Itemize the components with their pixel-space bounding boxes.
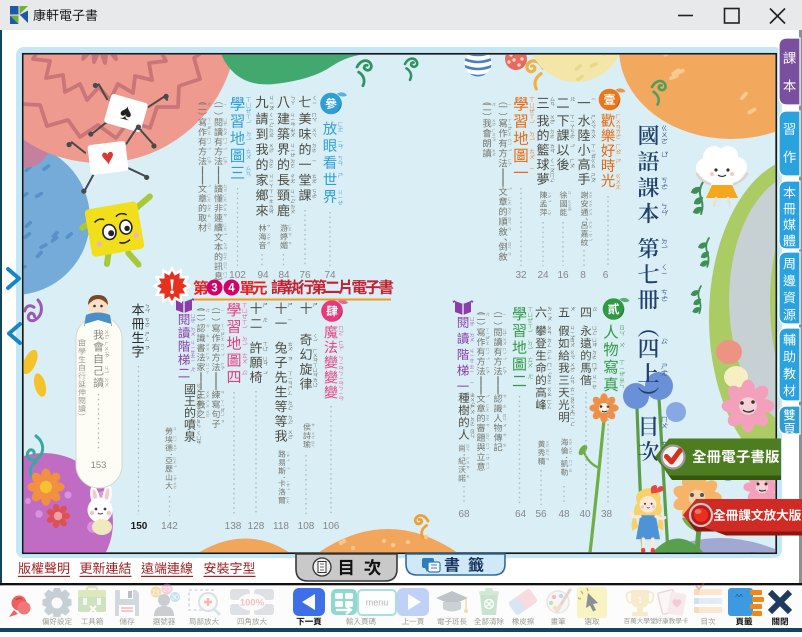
svg-text:64: 64 — [515, 509, 527, 520]
svg-text:16: 16 — [557, 270, 569, 281]
svg-text:153: 153 — [91, 460, 107, 471]
svg-text:84: 84 — [278, 270, 290, 281]
svg-text:3: 3 — [211, 283, 217, 295]
svg-text:32: 32 — [515, 270, 527, 281]
svg-text:106: 106 — [323, 521, 340, 532]
svg-text:23: 23 — [163, 587, 171, 594]
svg-text:^^: ^^ — [735, 593, 743, 602]
svg-text:40: 40 — [579, 509, 591, 520]
svg-text:1: 1 — [638, 596, 643, 605]
svg-text:4: 4 — [228, 283, 235, 295]
svg-text:108: 108 — [298, 521, 315, 532]
svg-text:102: 102 — [229, 270, 246, 281]
svg-text:6: 6 — [603, 270, 609, 281]
svg-text:24: 24 — [537, 270, 549, 281]
svg-text:!: ! — [168, 274, 175, 299]
svg-text:68: 68 — [458, 509, 470, 520]
svg-text:21: 21 — [152, 590, 160, 597]
svg-text:100%: 100% — [240, 598, 265, 609]
svg-text:8: 8 — [580, 270, 586, 281]
svg-text:···: ··· — [710, 600, 715, 606]
svg-text:150: 150 — [131, 521, 148, 532]
svg-text:138: 138 — [225, 521, 242, 532]
svg-text:94: 94 — [257, 270, 269, 281]
svg-text:74: 74 — [324, 270, 336, 281]
svg-text:48: 48 — [558, 509, 570, 520]
svg-text:30: 30 — [171, 595, 179, 602]
svg-text:142: 142 — [161, 521, 178, 532]
svg-text:56: 56 — [535, 509, 547, 520]
svg-text:menu: menu — [366, 598, 389, 608]
svg-text:118: 118 — [273, 521, 289, 532]
svg-text:38: 38 — [601, 509, 613, 520]
svg-text:76: 76 — [299, 270, 311, 281]
svg-text:128: 128 — [248, 521, 265, 532]
